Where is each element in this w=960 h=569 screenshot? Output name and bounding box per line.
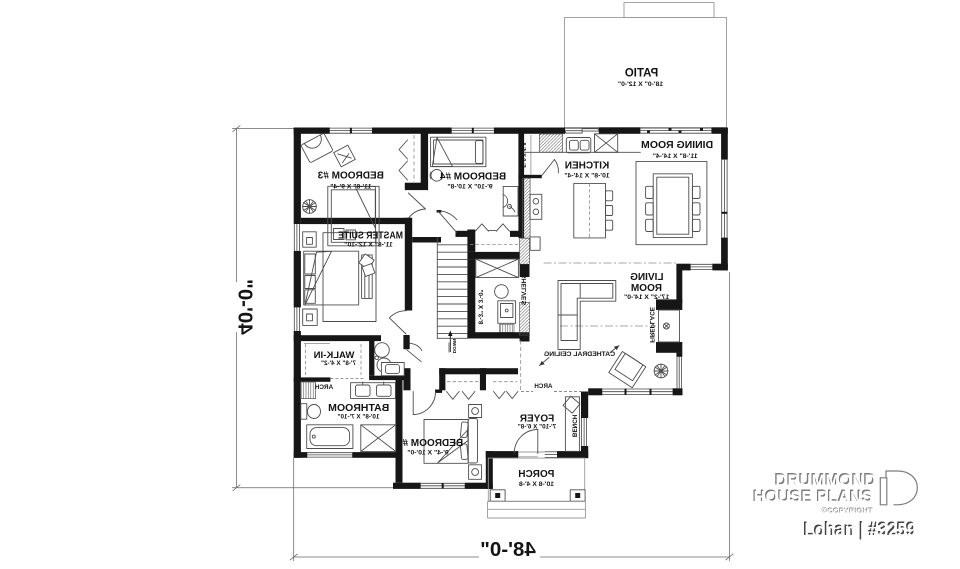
svg-text:17'-2" X 14'-0": 17'-2" X 14'-0" (624, 294, 669, 301)
svg-text:9'-10" X 10'-8": 9'-10" X 10'-8" (447, 184, 492, 191)
svg-text:DINING ROOM: DINING ROOM (641, 140, 713, 151)
svg-text:KITCHEN: KITCHEN (565, 161, 609, 172)
svg-text:11'-8" X 12'-10": 11'-8" X 12'-10" (344, 241, 393, 248)
svg-text:SHELVES: SHELVES (521, 274, 528, 306)
svg-text:Lohan | #3259: Lohan | #3259 (804, 520, 916, 541)
svg-text:5'-0 X 4'-8: 5'-0 X 4'-8 (520, 142, 526, 167)
svg-text:11'-8" X 14'-4": 11'-8" X 14'-4" (653, 153, 698, 160)
svg-text:BEDROOM #4: BEDROOM #4 (440, 171, 507, 182)
svg-text:PATIO: PATIO (625, 67, 658, 79)
svg-text:10'-8" X 7'-10": 10'-8" X 7'-10" (338, 413, 380, 420)
svg-text:BATHROOM: BATHROOM (328, 402, 389, 414)
svg-text:FIREPLACE: FIREPLACE (648, 307, 655, 343)
svg-text:10'-8" X 14'-4": 10'-8" X 14'-4" (564, 173, 609, 180)
svg-text:9'-4" X 10'-0": 9'-4" X 10'-0" (407, 449, 448, 456)
svg-text:40'-0": 40'-0" (234, 279, 257, 335)
svg-text:MASTER SUITE: MASTER SUITE (338, 230, 403, 241)
svg-text:ROOM: ROOM (631, 283, 662, 294)
svg-text:48'-0": 48'-0" (480, 538, 536, 561)
svg-text:LIVING: LIVING (630, 272, 664, 283)
svg-text:8'-3" X 3'-0": 8'-3" X 3'-0" (477, 290, 484, 325)
svg-text:BENCH: BENCH (570, 414, 577, 437)
svg-text:7'-10" X 6'-8": 7'-10" X 6'-8" (518, 424, 556, 431)
svg-text:11'-8" X 9'-4": 11'-8" X 9'-4" (330, 183, 371, 190)
svg-text:18'-0" X 12'-0": 18'-0" X 12'-0" (618, 81, 663, 88)
svg-text:ARCH: ARCH (534, 383, 553, 390)
svg-text:PORCH: PORCH (518, 469, 554, 480)
svg-text:7'-8" X 4'-2": 7'-8" X 4'-2" (321, 360, 356, 367)
svg-text:DOWN: DOWN (452, 338, 457, 353)
svg-text:HOUSE PLANS: HOUSE PLANS (754, 488, 874, 506)
svg-text:10'-8 X 4'-8: 10'-8 X 4'-8 (519, 481, 554, 488)
svg-text:ARCH: ARCH (314, 384, 333, 391)
svg-text:©COPYRIGHT: ©COPYRIGHT (822, 506, 874, 515)
svg-text:CATHEDRAL CEILING: CATHEDRAL CEILING (544, 351, 615, 358)
svg-text:BEDROOM #2: BEDROOM #2 (397, 438, 464, 449)
svg-text:BEDROOM #3: BEDROOM #3 (317, 171, 384, 182)
